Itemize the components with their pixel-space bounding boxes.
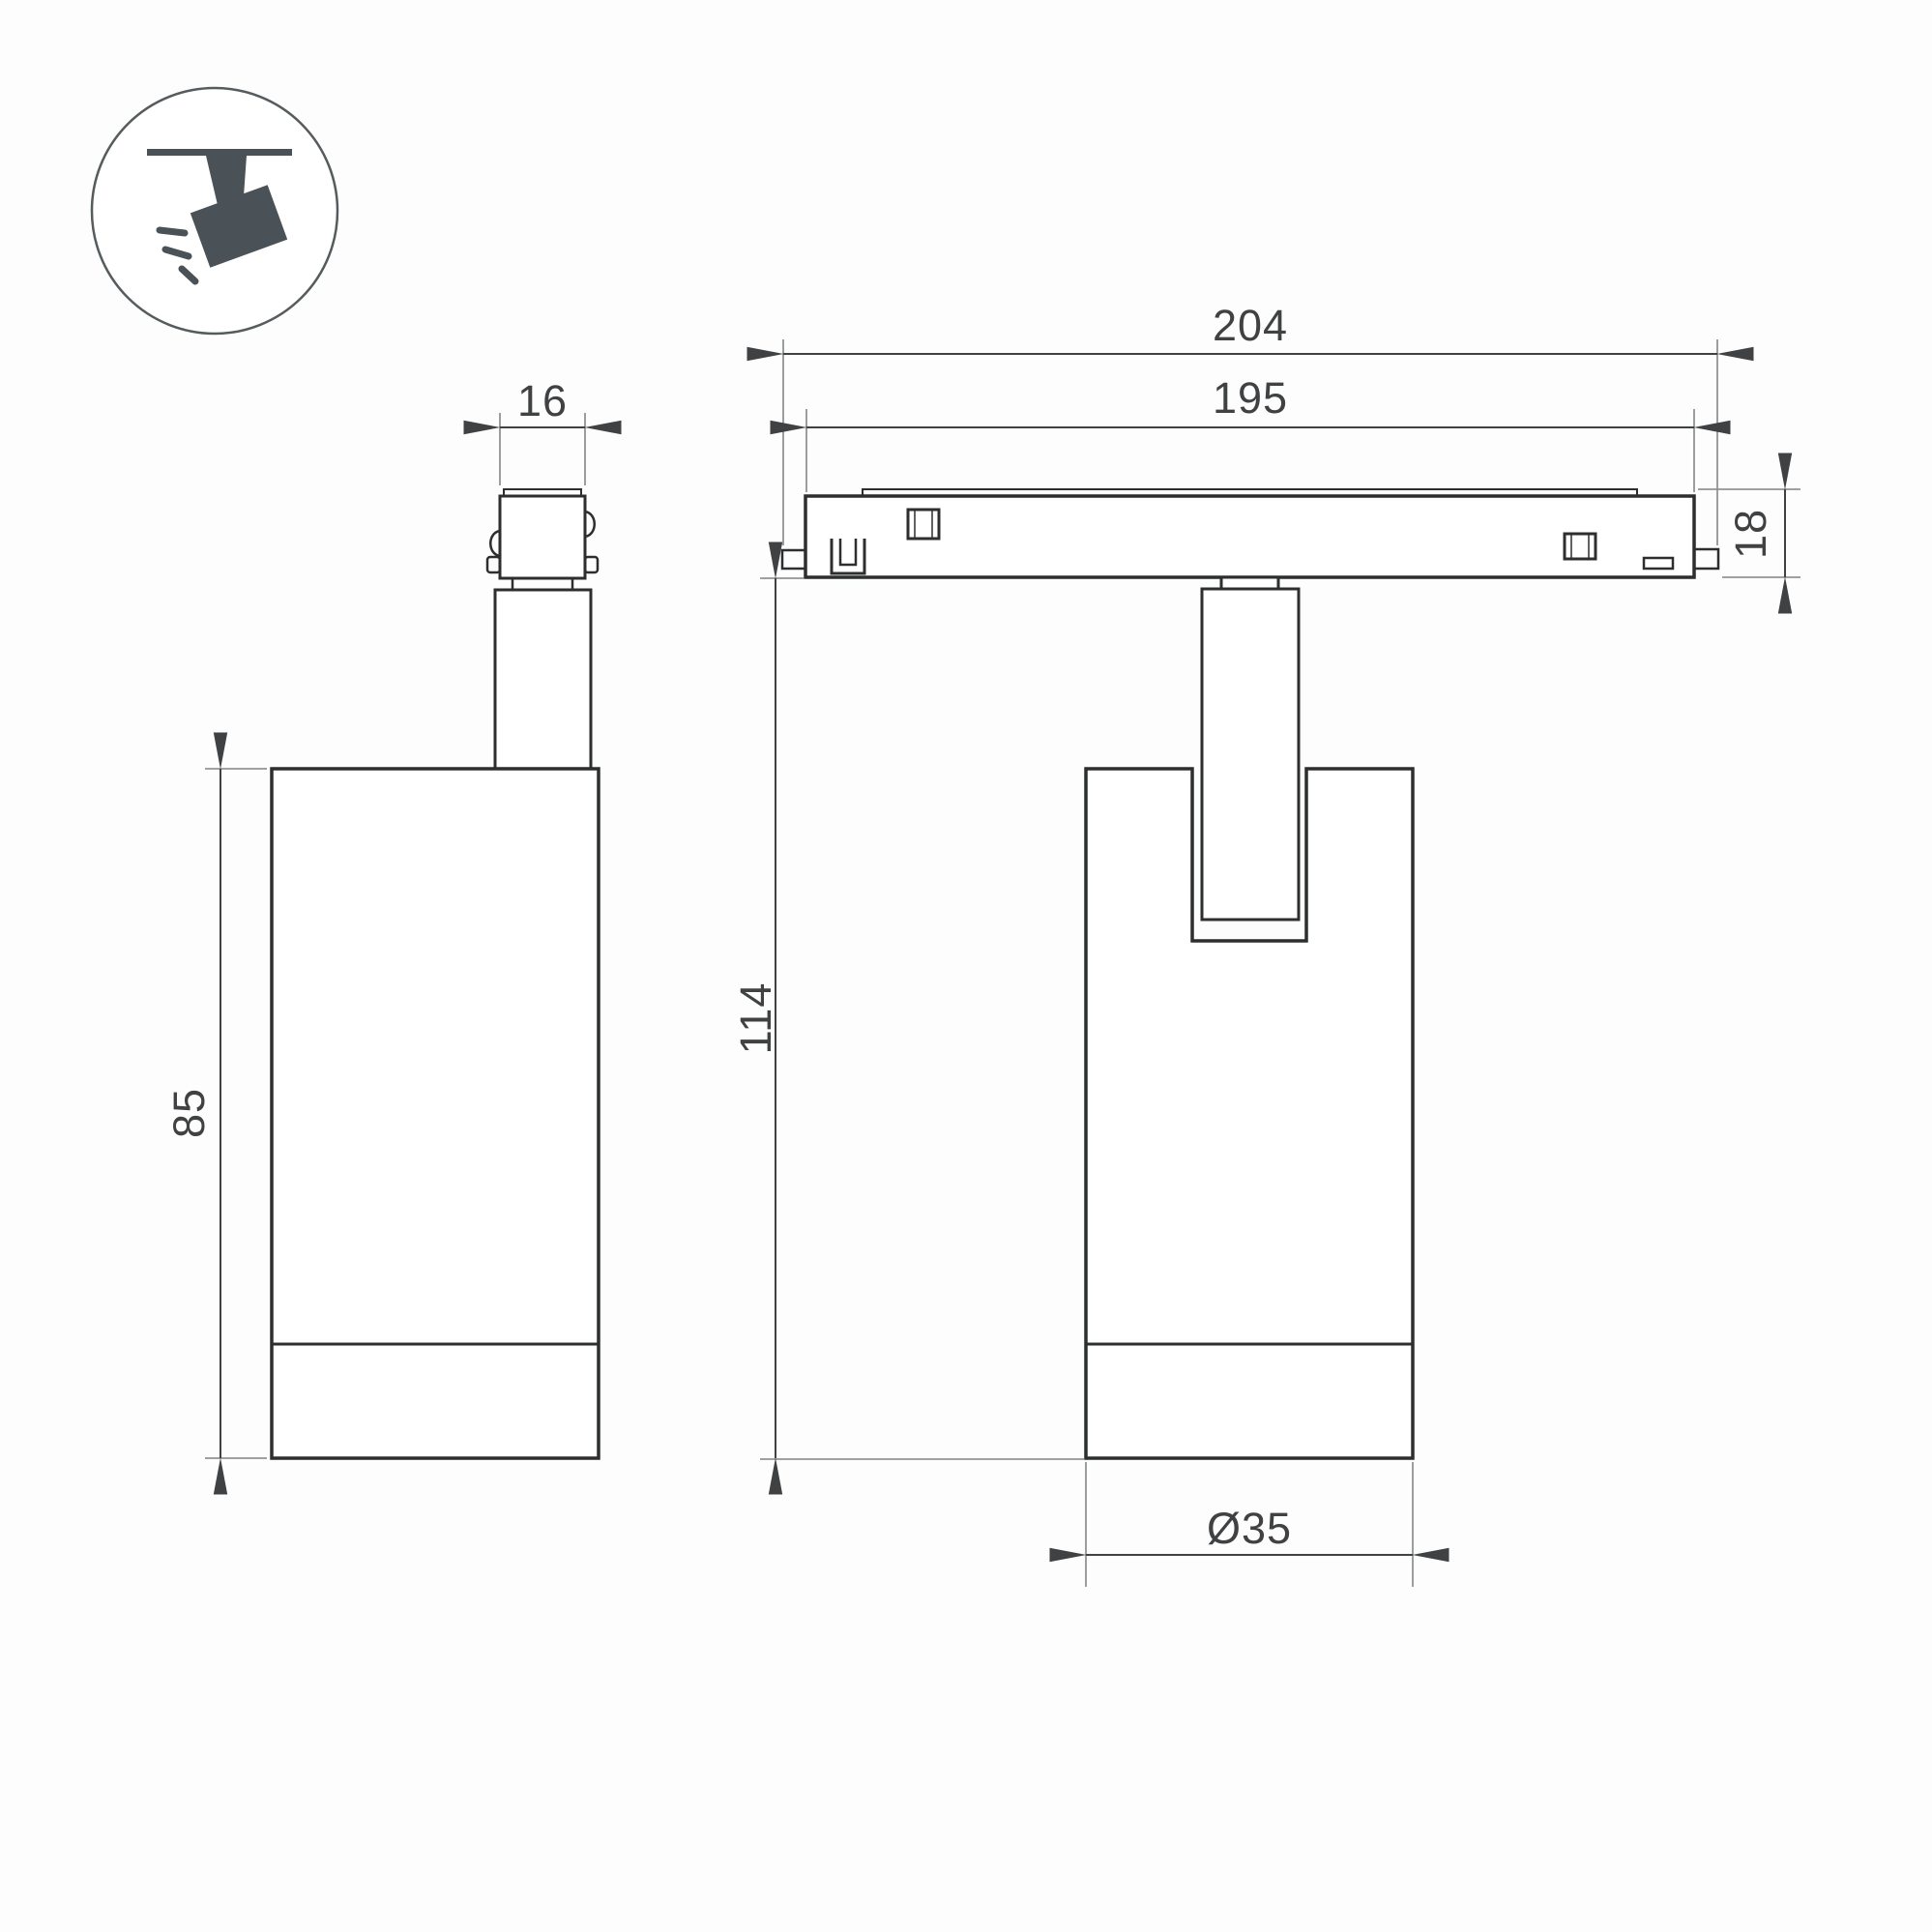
front-track-end-tab-right [1694, 549, 1718, 569]
dim-track-height: 18 [1698, 489, 1800, 577]
side-stem [495, 590, 591, 769]
spotlight-dimension-drawing: 16 85 204 195 18 [0, 0, 1932, 1932]
icon-light-ray [160, 230, 185, 233]
dim-label-track-inner-length: 195 [1213, 373, 1288, 423]
dim-overall-height: 114 [731, 578, 1084, 1459]
side-connector-neck [512, 578, 572, 590]
dim-label-overall-height: 114 [731, 982, 780, 1055]
product-icon-badge [92, 88, 337, 334]
front-view [782, 489, 1718, 1458]
side-track-connector [500, 496, 585, 578]
dim-label-track-length: 204 [1213, 301, 1288, 350]
side-view [272, 489, 599, 1458]
front-stem-collar [1221, 577, 1278, 589]
side-lamp-body [272, 769, 599, 1458]
dim-label-track-height: 18 [1726, 509, 1775, 559]
dim-label-connector-width: 16 [517, 376, 568, 425]
side-connector-tab-left [487, 557, 500, 572]
dim-body-height: 85 [164, 769, 267, 1458]
dim-track-inner-length: 195 [806, 373, 1694, 492]
technical-drawing-canvas: 16 85 204 195 18 [0, 0, 1932, 1932]
front-track-end-tab-left [782, 550, 805, 569]
icon-ceiling-bar [147, 149, 292, 156]
dim-label-body-diameter: Ø35 [1207, 1504, 1292, 1553]
dim-body-diameter: Ø35 [1086, 1462, 1413, 1587]
dim-label-body-height: 85 [164, 1088, 214, 1138]
front-stem [1202, 589, 1299, 920]
dim-connector-width: 16 [500, 376, 585, 485]
side-connector-tab-right [585, 557, 598, 572]
